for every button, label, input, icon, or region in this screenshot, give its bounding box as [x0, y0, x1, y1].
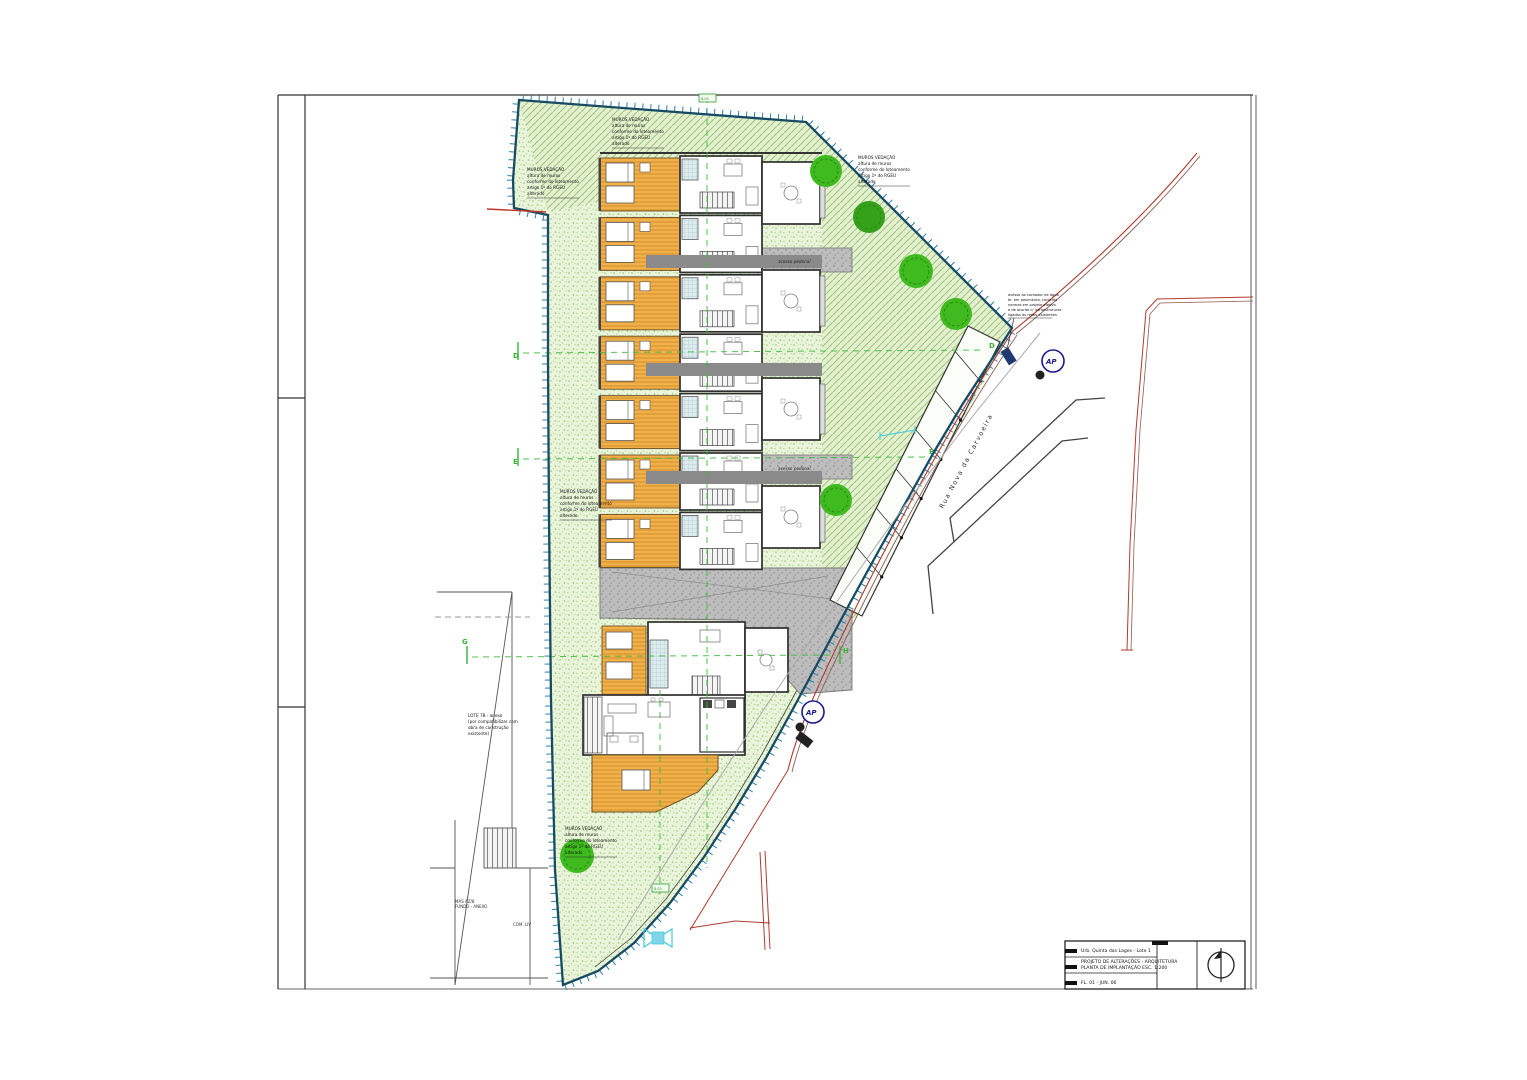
bed [606, 519, 634, 538]
svg-text:normas em projeto efetivo: normas em projeto efetivo [1008, 303, 1056, 307]
svg-text:artigo 1º do RGEU: artigo 1º do RGEU [565, 844, 603, 849]
housing-unit [599, 275, 763, 332]
path-label-lower: acesso pedonal [778, 466, 811, 471]
deck-wall [599, 277, 602, 330]
plot-label-b: COM. LIV [513, 922, 531, 927]
parking-dot [900, 536, 903, 539]
wing [762, 486, 820, 548]
svg-text:altura de muros: altura de muros [612, 123, 645, 128]
housing-unit [599, 394, 763, 451]
svg-text:alterado: alterado [527, 191, 545, 196]
terraced-house-row [599, 156, 763, 569]
tree-icon [899, 254, 933, 288]
svg-text:LOTE 7B - anexo: LOTE 7B - anexo [468, 713, 503, 718]
bathroom [682, 278, 698, 299]
ap-label-lower: AP [805, 709, 817, 717]
wing [762, 378, 820, 440]
site-plan-drawing: D E G H D E B.05 B.05 [0, 0, 1527, 1080]
housing-unit [599, 512, 763, 569]
note-annex-left: LOTE 7B - anexo (por compatibilizar com … [468, 713, 518, 736]
wing-room [762, 486, 825, 548]
nightstand [640, 460, 650, 469]
deck-wall [599, 396, 602, 449]
svg-text:MUROS VEDAÇÃO: MUROS VEDAÇÃO [612, 117, 650, 122]
bed [606, 364, 634, 381]
title-row2a: PROJETO DE ALTERAÇÕES - ARQUITETURA [1081, 958, 1178, 965]
stairs [700, 311, 734, 327]
tree-icon [810, 155, 842, 187]
svg-text:MUROS VEDAÇÃO: MUROS VEDAÇÃO [560, 489, 598, 494]
grid-tag-top: B.05 [701, 97, 709, 101]
plot-label-a2: FUNDO - ANEXO [455, 904, 487, 909]
title-row3: FL. 01 - JUN. 06 [1081, 980, 1117, 986]
parking-dot [880, 575, 883, 578]
svg-text:altura de muros: altura de muros [560, 495, 593, 500]
bed [606, 186, 634, 203]
vehicle-mark [795, 731, 813, 748]
grid-letter-e: E [513, 458, 518, 466]
tree-canopy [940, 298, 972, 330]
tree-icon [820, 484, 852, 516]
bed [606, 245, 634, 262]
bathroom [682, 515, 698, 536]
svg-text:conforme do loteamento: conforme do loteamento [858, 167, 910, 172]
balcony [820, 276, 825, 326]
svg-text:artigo 1º do RGEU: artigo 1º do RGEU [612, 135, 650, 140]
svg-text:artigo 1º do RGEU: artigo 1º do RGEU [527, 185, 565, 190]
ap-label-upper: AP [1045, 358, 1057, 366]
title-row1: Urb. Quinta das Lages - Lote 1 [1081, 948, 1151, 954]
svg-text:alterado: alterado [560, 513, 578, 518]
parking-dot [959, 419, 962, 422]
deck-wall [599, 158, 602, 211]
svg-text:conforme do loteamento: conforme do loteamento [560, 501, 612, 506]
bathroom [682, 337, 698, 358]
tree-canopy [810, 155, 842, 187]
stairs [700, 489, 734, 505]
bathroom [682, 159, 698, 180]
svg-text:acesso ao contador de água: acesso ao contador de água [1008, 293, 1059, 297]
neighbor-plot-labels: MAS AZ/8 FUNDO - ANEXO COM. LIV [455, 899, 531, 927]
nightstand [640, 282, 650, 291]
site-plan-page: D E G H D E B.05 B.05 [0, 0, 1527, 1080]
deck-wall [599, 514, 602, 567]
tree-icon [940, 298, 972, 330]
bathroom [682, 218, 698, 239]
svg-text:conforme do loteamento: conforme do loteamento [565, 838, 617, 843]
grid-letter-h: H [843, 647, 849, 655]
title-block: Urb. Quinta das Lages - Lote 1 PROJETO D… [1065, 941, 1245, 989]
svg-text:existente): existente) [468, 731, 489, 736]
housing-unit [599, 334, 763, 391]
svg-text:alterado: alterado [565, 850, 583, 855]
grid-letter-g: G [462, 638, 468, 646]
bed [606, 483, 634, 500]
water-valve-symbol [644, 929, 672, 947]
svg-text:alterado: alterado [858, 179, 876, 184]
grid-letter-d: D [513, 352, 519, 360]
svg-text:altura de muros: altura de muros [565, 832, 598, 837]
path-label-upper: acesso pedonal [778, 259, 811, 264]
balcony [820, 384, 825, 434]
svg-text:altura de muros: altura de muros [858, 161, 891, 166]
bed [606, 401, 634, 420]
bed [606, 282, 634, 301]
manhole-upper [1036, 371, 1045, 380]
svg-text:obra de construção: obra de construção [468, 725, 509, 730]
svg-text:altura de muros: altura de muros [527, 173, 560, 178]
nightstand [640, 519, 650, 528]
svg-text:ligadas às redes existentes: ligadas às redes existentes [1008, 313, 1057, 317]
title-row2b: PLANTA DE IMPLANTAÇÃO ESC. 1:200 [1081, 964, 1167, 971]
tree-icon [853, 201, 885, 233]
svg-text:conforme do loteamento: conforme do loteamento [612, 129, 664, 134]
note-wall-top-right: MUROS VEDAÇÃO altura de muros conforme d… [858, 155, 910, 186]
svg-text:e de acordo c/ infraestruturas: e de acordo c/ infraestruturas [1008, 308, 1062, 312]
tree-canopy [853, 201, 885, 233]
nightstand [640, 401, 650, 410]
wing-room [762, 270, 825, 332]
bed [606, 163, 634, 182]
bed [606, 305, 634, 322]
note-entrance: acesso ao contador de água br. em pavime… [1004, 293, 1062, 354]
grid-tag-bottom: B.05 [654, 887, 662, 891]
bed [606, 424, 634, 441]
building-lower-mid [602, 622, 788, 700]
svg-text:MUROS VEDAÇÃO: MUROS VEDAÇÃO [858, 155, 896, 160]
bed [606, 460, 634, 479]
svg-text:(por compatibilizar com: (por compatibilizar com [468, 719, 518, 724]
stairs [700, 192, 734, 208]
nightstand [640, 163, 650, 172]
stairs [700, 430, 734, 446]
wing [762, 270, 820, 332]
party-wall [646, 471, 822, 484]
bathroom [682, 397, 698, 418]
svg-text:MUROS VEDAÇÃO: MUROS VEDAÇÃO [527, 167, 565, 172]
party-wall [646, 363, 822, 376]
wing-room [762, 378, 825, 440]
stairs [700, 548, 734, 564]
bed [606, 222, 634, 241]
svg-text:conforme do loteamento: conforme do loteamento [527, 179, 579, 184]
housing-unit [599, 156, 763, 213]
deck-wall [599, 217, 602, 270]
tree-canopy [899, 254, 933, 288]
manhole-lower [796, 723, 805, 732]
nightstand [640, 222, 650, 231]
bed [606, 341, 634, 360]
svg-text:artigo 1º do RGEU: artigo 1º do RGEU [858, 173, 896, 178]
svg-text:br. em pavimento, consulta: br. em pavimento, consulta [1008, 298, 1057, 302]
svg-text:artigo 1º do RGEU: artigo 1º do RGEU [560, 507, 598, 512]
nightstand [640, 341, 650, 350]
parking-dot [920, 497, 923, 500]
tree-canopy [820, 484, 852, 516]
svg-text:alterado: alterado [612, 141, 630, 146]
grid-letter-d-right: D [989, 342, 995, 350]
deck-wall [599, 336, 602, 389]
bed [606, 542, 634, 559]
svg-text:MUROS VEDAÇÃO: MUROS VEDAÇÃO [565, 826, 603, 831]
